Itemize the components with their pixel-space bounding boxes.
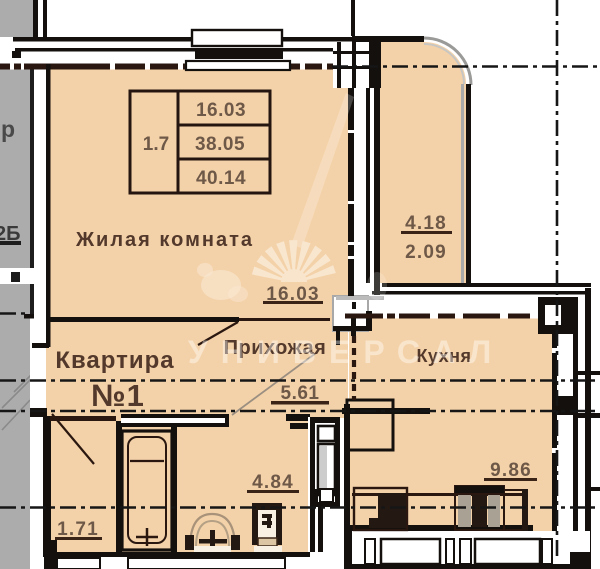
svg-text:Квартира: Квартира <box>55 347 174 374</box>
svg-text:16.03: 16.03 <box>196 100 246 121</box>
svg-text:р: р <box>1 116 15 142</box>
svg-text:Жилая комната: Жилая комната <box>75 229 254 251</box>
svg-text:4.84: 4.84 <box>252 472 294 493</box>
svg-text:1.71: 1.71 <box>57 519 99 540</box>
svg-text:УНИВЕРСАЛ: УНИВЕРСАЛ <box>188 334 504 370</box>
svg-text:№1: №1 <box>91 378 145 413</box>
svg-text:9.86: 9.86 <box>490 460 532 481</box>
svg-text:2.09: 2.09 <box>405 242 447 263</box>
svg-text:5.61: 5.61 <box>281 383 320 404</box>
svg-text:1.7: 1.7 <box>143 134 169 155</box>
svg-text:40.14: 40.14 <box>196 168 246 189</box>
svg-text:38.05: 38.05 <box>195 134 245 155</box>
svg-text:4.18: 4.18 <box>405 213 447 234</box>
